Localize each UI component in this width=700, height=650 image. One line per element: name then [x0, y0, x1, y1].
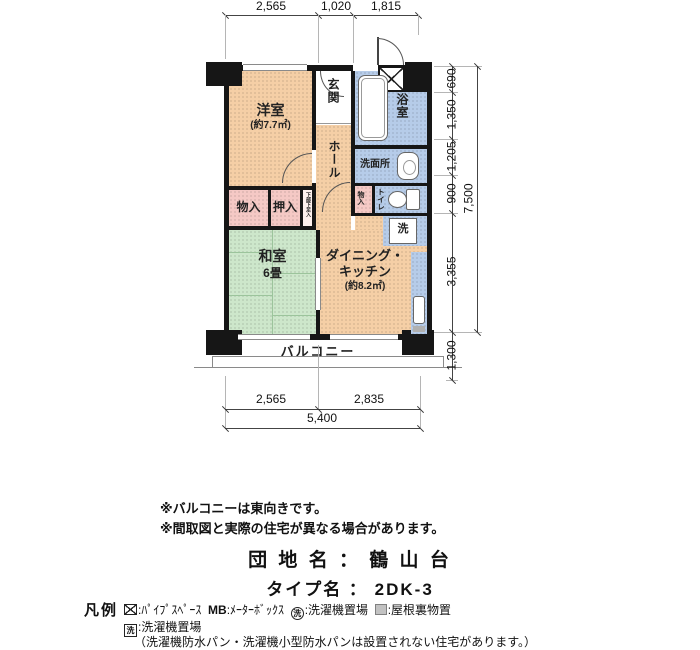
dim-top-3: 1,815: [361, 0, 411, 13]
balcony-railing-outer: [194, 367, 462, 368]
mb-icon: MB: [208, 603, 227, 617]
label-western-name: 洋室: [229, 102, 312, 120]
washbasin-bowl: [403, 160, 416, 175]
wall-bath-bottom: [351, 145, 432, 149]
wall-hall-left: [312, 190, 316, 230]
toilet-bowl: [388, 191, 407, 208]
window-western: [243, 64, 307, 71]
laundry-circle-icon: 洗: [291, 607, 304, 620]
dim-right-4: 900: [446, 172, 459, 216]
floorplan-page: 2,565 1,020 1,815: [0, 0, 700, 650]
dim-line-bottom-1: [225, 409, 420, 410]
label-closet-note: 下部下足入: [305, 192, 310, 217]
danchi-name-title: 団 地 名 ： 鶴 山 台: [110, 545, 590, 572]
dim-bottom-total: 5,400: [297, 412, 347, 425]
tatami-line: [272, 230, 273, 334]
legend-item-laundry: :洗濯機置場: [305, 603, 368, 617]
pipe-space-icon: [124, 604, 137, 615]
label-storage-left: 物入: [229, 200, 268, 215]
entrance-door-arc: [377, 38, 404, 65]
window-washitsu-balcony: [238, 334, 310, 340]
toilet-tank: [406, 189, 420, 210]
note-disclaimer: ※間取図と実際の住宅が異なる場合があります。: [160, 518, 444, 537]
dim-right-6: 1,300: [446, 334, 459, 378]
label-dk-area: (約8.2㎡): [314, 281, 416, 294]
legend-item-pipe-space: :ﾊﾟｲﾌﾟｽﾍﾟｰｽ: [138, 603, 201, 617]
extension-line: [418, 15, 419, 35]
note-balcony-direction: ※バルコニーは東向きです。: [160, 498, 327, 517]
column-top-left: [206, 62, 242, 86]
balcony-railing-inner: [212, 356, 444, 357]
label-western: 洋室 (約7.7㎡): [229, 102, 312, 132]
label-toilet: トイレ: [377, 188, 385, 211]
extension-line: [420, 376, 421, 428]
wall-closet-bottom: [229, 226, 316, 230]
bathtub: [358, 75, 388, 141]
wall-toilet-bottom: [351, 213, 432, 216]
legend-line-3: （洗濯機防水パン・洗濯機小型防水パンは設置されない住宅があります。）: [134, 633, 536, 650]
label-hall: ホール: [328, 140, 340, 179]
balcony-railing-step-left: [212, 356, 213, 367]
window-dk-balcony: [330, 334, 398, 340]
attic-storage-icon: [375, 604, 387, 615]
kitchen-stove: [413, 326, 425, 332]
label-dk-line2: キッチン: [314, 264, 416, 280]
label-genkan: 玄関: [327, 78, 339, 104]
dim-bottom-1: 2,565: [246, 393, 296, 406]
label-western-area: (約7.7㎡): [229, 120, 312, 133]
dim-right-2: 1,350: [446, 93, 459, 137]
label-storage-small: 物入: [357, 191, 364, 205]
column-bottom-left: [206, 330, 242, 355]
legend-item-attic: :屋根裏物置: [388, 603, 451, 617]
wall-washroom-bottom: [351, 183, 432, 186]
extension-line: [318, 15, 319, 63]
label-dk: ダイニング・ キッチン (約8.2㎡): [314, 248, 416, 293]
kitchen-sink: [413, 296, 425, 324]
legend-heading: 凡例: [84, 599, 118, 620]
extension-line: [225, 15, 226, 59]
western-door-opening: [312, 150, 316, 183]
genkan-step-line: [316, 123, 351, 124]
type-name-title: タイプ名 ： 2DK-3: [110, 575, 590, 600]
label-washitsu: 和室 6畳: [229, 248, 316, 281]
dim-top-2: 1,020: [311, 0, 361, 13]
label-washitsu-name: 和室: [229, 248, 316, 266]
label-washroom: 洗面所: [352, 159, 398, 172]
entrance-opening: [353, 65, 378, 71]
wall-right: [427, 65, 432, 340]
wall-toilet-left: [372, 186, 375, 213]
dim-right-total: 7,500: [463, 177, 476, 221]
legend-item-meter-box: :ﾒｰﾀｰﾎﾞｯｸｽ: [227, 603, 284, 617]
column-top-right: [405, 62, 432, 92]
label-dk-line1: ダイニング・: [314, 248, 416, 264]
dim-line-right-outer: [477, 66, 478, 332]
label-bath: 浴室: [396, 93, 408, 119]
laundry-label: 洗: [389, 223, 417, 237]
dim-top-1: 2,565: [246, 0, 296, 13]
bathtub-inner: [361, 78, 385, 138]
extension-line: [353, 15, 354, 63]
tatami-line: [272, 315, 316, 316]
label-washitsu-size: 6畳: [229, 266, 316, 281]
dim-line-bottom-2: [225, 428, 420, 429]
dim-line-top: [225, 15, 418, 16]
dim-bottom-2: 2,835: [344, 393, 394, 406]
extension-line: [318, 345, 319, 409]
washbasin: [397, 152, 419, 180]
legend-line2-label: :洗濯機置場: [138, 620, 201, 634]
label-closet: 押入: [269, 200, 301, 215]
dim-right-5: 3,355: [446, 250, 459, 294]
tatami-line: [229, 295, 272, 296]
extension-line: [225, 376, 226, 428]
wall-hall-right: [351, 71, 355, 216]
